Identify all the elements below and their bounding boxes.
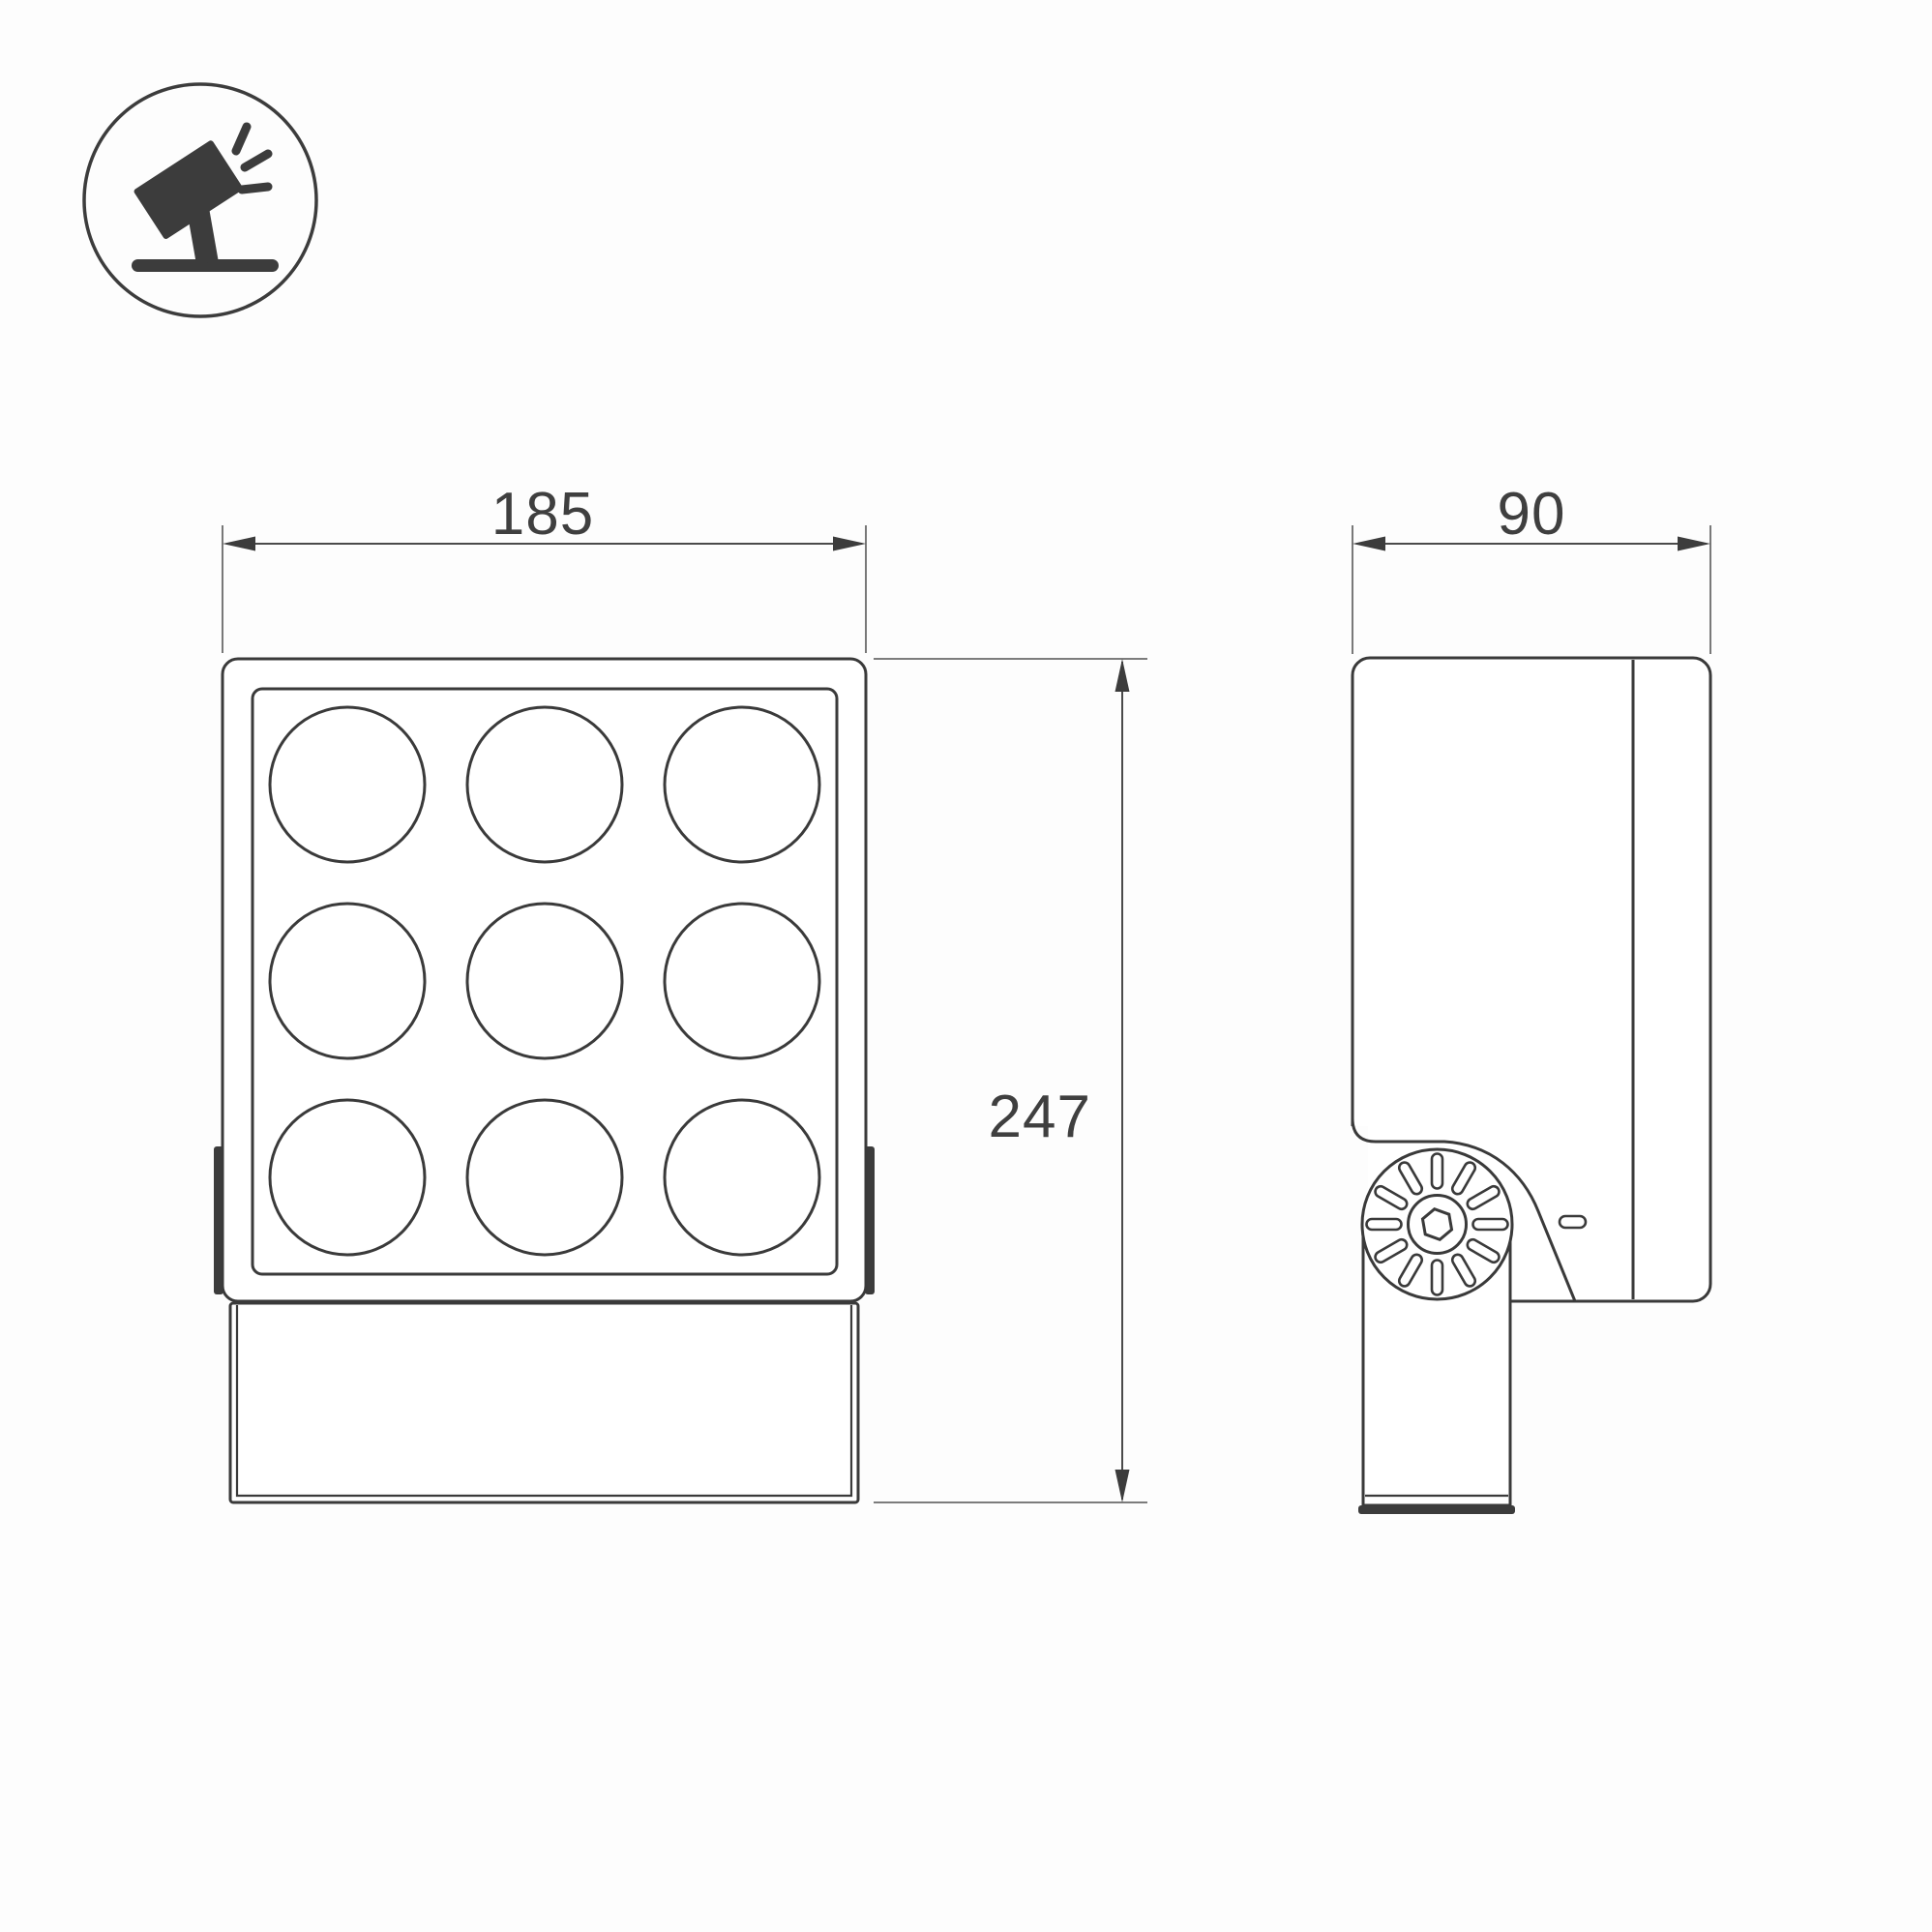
width-dimension-value: 185: [491, 481, 594, 548]
side-view: [1344, 658, 1710, 1514]
dimension-drawing: 185 90 247: [0, 0, 1932, 1932]
arrow-up-icon: [1115, 659, 1130, 692]
knob-hub: [1409, 1196, 1467, 1254]
arrow-right-icon: [833, 537, 866, 551]
lamp-housing: [223, 659, 866, 1301]
height-dimension: 247: [874, 659, 1147, 1502]
icon-lamp-head: [133, 139, 244, 240]
arm-end-cap: [1358, 1505, 1515, 1514]
front-view: [214, 659, 875, 1502]
arrow-down-icon: [1115, 1470, 1130, 1502]
width-dimension: 185: [223, 481, 866, 653]
height-dimension-value: 247: [989, 1084, 1091, 1150]
depth-dimension-value: 90: [1498, 481, 1566, 548]
driver-box: [230, 1303, 858, 1502]
indicator-slot: [1560, 1216, 1586, 1228]
adjustable-floodlight-icon: [84, 84, 316, 316]
arrow-left-icon: [223, 537, 255, 551]
arrow-right-icon: [1678, 537, 1710, 551]
depth-dimension: 90: [1352, 481, 1710, 654]
knurled-knob: [1362, 1149, 1512, 1299]
arrow-left-icon: [1352, 537, 1385, 551]
drawing-canvas: 185 90 247: [0, 0, 1932, 1932]
icon-light-rays: [236, 127, 268, 190]
